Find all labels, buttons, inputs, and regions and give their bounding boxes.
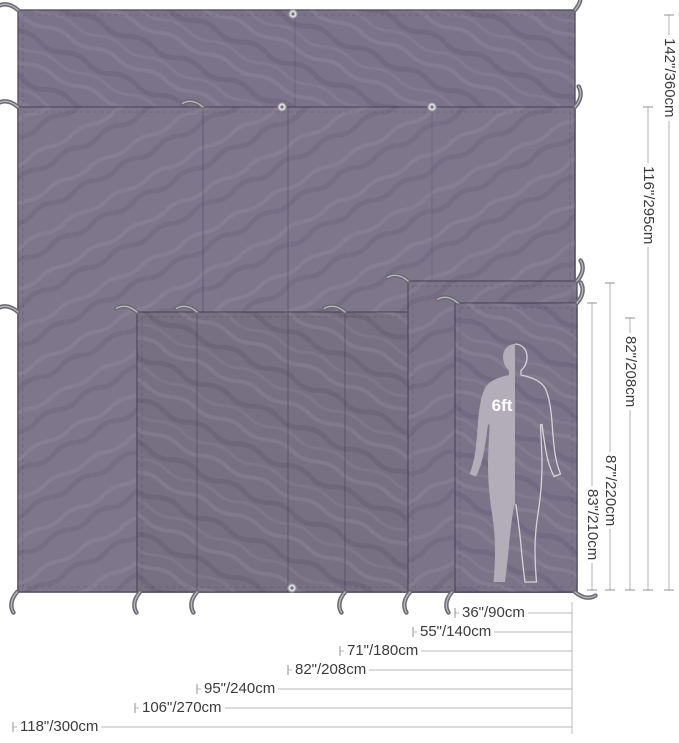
tarp-83in-tall bbox=[455, 303, 577, 592]
width-dimension-label-82in: 82"/208cm bbox=[292, 661, 369, 679]
width-dimension-label-95in: 95"/240cm bbox=[201, 680, 278, 698]
width-dimension-label-106in: 106"/270cm bbox=[139, 699, 225, 717]
height-dimension-label-87in: 87"/220cm bbox=[601, 452, 619, 529]
scale-figure-label: 6ft bbox=[482, 396, 522, 416]
tarp-size-diagram: 142"/360cm 116"/295cm 82"/208cm 87"/220c… bbox=[0, 0, 679, 743]
width-dimension-label-36in: 36"/90cm bbox=[459, 604, 528, 622]
width-dimension-label-55in: 55"/140cm bbox=[417, 623, 494, 641]
diagram-scene bbox=[0, 0, 679, 743]
height-dimension-label-82in: 82"/208cm bbox=[621, 333, 639, 410]
width-dimension-label-71in: 71"/180cm bbox=[344, 642, 421, 660]
height-dimension-label-142in: 142"/360cm bbox=[660, 35, 678, 121]
width-dimension-label-118in: 118"/300cm bbox=[17, 718, 101, 736]
height-dimension-label-83in: 83"/210cm bbox=[583, 486, 601, 563]
height-dimension-label-116in: 116"/295cm bbox=[639, 163, 657, 247]
